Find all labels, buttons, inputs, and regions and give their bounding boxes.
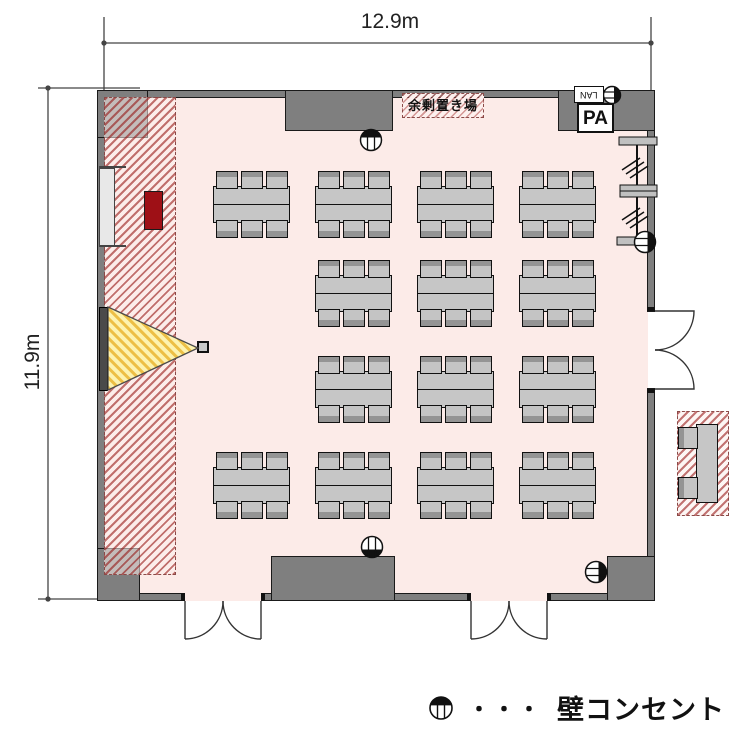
- table-top: [519, 186, 596, 223]
- chair: [368, 356, 390, 374]
- chair: [572, 171, 594, 189]
- chair: [445, 356, 467, 374]
- dining-table: [315, 186, 392, 223]
- table-top: [519, 467, 596, 504]
- table-top: [417, 275, 494, 312]
- chair: [318, 309, 340, 327]
- chair: [547, 260, 569, 278]
- dining-table: [519, 275, 596, 312]
- chair: [445, 452, 467, 470]
- chair: [318, 171, 340, 189]
- table-top: [213, 186, 290, 223]
- chair: [420, 171, 442, 189]
- table-top: [417, 467, 494, 504]
- chair: [547, 171, 569, 189]
- chair: [470, 309, 492, 327]
- chair: [343, 356, 365, 374]
- table-top: [315, 371, 392, 408]
- chair: [547, 452, 569, 470]
- chair: [266, 501, 288, 519]
- dining-table: [213, 467, 290, 504]
- table-top: [315, 186, 392, 223]
- chair: [343, 501, 365, 519]
- chair: [216, 171, 238, 189]
- lan-box: LAN: [574, 86, 604, 103]
- chair: [420, 452, 442, 470]
- chair: [318, 405, 340, 423]
- chair: [241, 220, 263, 238]
- projector: [197, 341, 209, 353]
- chair: [318, 260, 340, 278]
- chair: [216, 452, 238, 470]
- chair: [470, 171, 492, 189]
- legend-label: 壁コンセント: [557, 688, 725, 727]
- chair: [572, 405, 594, 423]
- chair: [318, 356, 340, 374]
- table-top: [315, 467, 392, 504]
- pa-box: PA: [577, 103, 614, 133]
- table-top: [519, 371, 596, 408]
- chair: [318, 220, 340, 238]
- floor-plan: 12.9m 11.9m 余剰置き場 LAN PA ・・・ 壁コンセント: [0, 0, 750, 750]
- legend: ・・・ 壁コンセント: [428, 688, 725, 727]
- chair: [572, 220, 594, 238]
- table-top: [417, 371, 494, 408]
- chair: [368, 501, 390, 519]
- reception-table: [696, 424, 718, 503]
- chair: [368, 171, 390, 189]
- chair: [343, 171, 365, 189]
- storage-area-label: 余剰置き場: [402, 93, 484, 118]
- chair: [522, 356, 544, 374]
- chair: [522, 309, 544, 327]
- chair: [420, 260, 442, 278]
- chair: [470, 405, 492, 423]
- chair: [420, 501, 442, 519]
- chair: [445, 501, 467, 519]
- chair: [368, 405, 390, 423]
- chair: [445, 260, 467, 278]
- chair: [522, 452, 544, 470]
- chair: [368, 309, 390, 327]
- chair: [343, 260, 365, 278]
- dining-table: [315, 275, 392, 312]
- chair: [522, 260, 544, 278]
- chair: [470, 356, 492, 374]
- dining-table: [519, 467, 596, 504]
- table-top: [417, 186, 494, 223]
- chair: [368, 452, 390, 470]
- chair: [470, 452, 492, 470]
- dimension-height-label: 11.9m: [21, 317, 45, 407]
- chair: [343, 309, 365, 327]
- chair: [241, 171, 263, 189]
- chair: [572, 356, 594, 374]
- chair: [216, 501, 238, 519]
- chair: [547, 356, 569, 374]
- chair: [678, 427, 698, 449]
- dimension-width-label: 12.9m: [345, 10, 435, 34]
- chair: [547, 220, 569, 238]
- table-grid: [0, 0, 750, 750]
- chair: [266, 171, 288, 189]
- dining-table: [315, 371, 392, 408]
- chair: [572, 452, 594, 470]
- chair: [266, 220, 288, 238]
- chair: [522, 171, 544, 189]
- dining-table: [519, 186, 596, 223]
- chair: [470, 220, 492, 238]
- dining-table: [417, 275, 494, 312]
- chair: [445, 405, 467, 423]
- chair: [343, 452, 365, 470]
- chair: [572, 309, 594, 327]
- wall-outlet-icon: [428, 695, 454, 721]
- chair: [547, 501, 569, 519]
- chair: [445, 220, 467, 238]
- chair: [522, 405, 544, 423]
- lan-label: LAN: [580, 87, 598, 102]
- chair: [368, 220, 390, 238]
- dining-table: [519, 371, 596, 408]
- chair: [547, 309, 569, 327]
- chair: [572, 501, 594, 519]
- table-top: [519, 275, 596, 312]
- chair: [318, 452, 340, 470]
- chair: [241, 501, 263, 519]
- chair: [368, 260, 390, 278]
- legend-dots: ・・・: [468, 692, 543, 724]
- chair: [445, 309, 467, 327]
- chair: [216, 220, 238, 238]
- dining-table: [417, 371, 494, 408]
- chair: [445, 171, 467, 189]
- chair: [572, 260, 594, 278]
- dining-table: [417, 467, 494, 504]
- dining-table: [315, 467, 392, 504]
- chair: [470, 501, 492, 519]
- table-top: [315, 275, 392, 312]
- chair: [470, 260, 492, 278]
- chair: [547, 405, 569, 423]
- chair: [420, 309, 442, 327]
- chair: [241, 452, 263, 470]
- chair: [522, 220, 544, 238]
- chair: [678, 477, 698, 499]
- chair: [318, 501, 340, 519]
- chair: [343, 220, 365, 238]
- chair: [420, 405, 442, 423]
- chair: [522, 501, 544, 519]
- chair: [343, 405, 365, 423]
- chair: [420, 220, 442, 238]
- table-top: [213, 467, 290, 504]
- dining-table: [417, 186, 494, 223]
- dining-table: [213, 186, 290, 223]
- chair: [266, 452, 288, 470]
- chair: [420, 356, 442, 374]
